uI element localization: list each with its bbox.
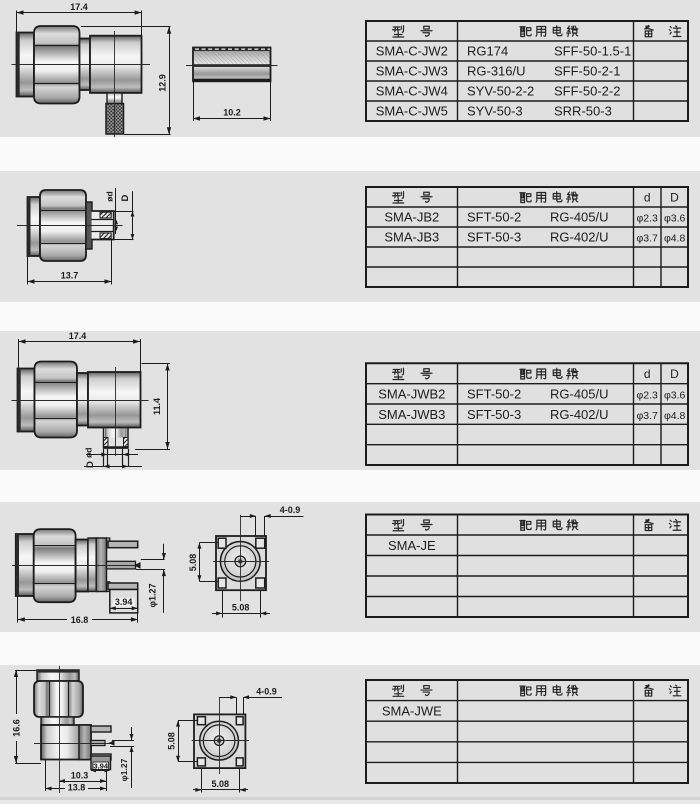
svg-text:φ4.8: φ4.8 — [664, 233, 686, 245]
svg-text:φ3.6: φ3.6 — [664, 390, 686, 402]
svg-text:10.2: 10.2 — [223, 108, 241, 118]
svg-text:D: D — [670, 367, 679, 381]
svg-text:D: D — [85, 461, 96, 468]
svg-text:4-0.9: 4-0.9 — [280, 505, 301, 515]
svg-text:φ3.7: φ3.7 — [636, 233, 658, 245]
svg-text:SFF-50-2-1: SFF-50-2-1 — [554, 64, 620, 79]
svg-text:17.4: 17.4 — [69, 331, 87, 341]
svg-text:SMA-JB3: SMA-JB3 — [384, 230, 439, 245]
svg-text:φ2.3: φ2.3 — [636, 390, 658, 402]
svg-text:RG-316/U: RG-316/U — [467, 64, 526, 79]
svg-text:SMA-JE: SMA-JE — [388, 538, 436, 553]
svg-text:ød: ød — [84, 448, 94, 458]
svg-text:φ3.6: φ3.6 — [664, 213, 686, 225]
svg-text:φ1.27: φ1.27 — [147, 584, 157, 608]
svg-text:SMA-JWB2: SMA-JWB2 — [378, 387, 445, 402]
svg-text:SFF-50-2-2: SFF-50-2-2 — [554, 84, 620, 99]
svg-text:SRR-50-3: SRR-50-3 — [554, 104, 612, 119]
svg-text:5.08: 5.08 — [167, 732, 177, 750]
svg-text:D: D — [120, 194, 131, 201]
svg-text:SMA-C-JW3: SMA-C-JW3 — [376, 64, 448, 79]
svg-text:17.4: 17.4 — [70, 2, 88, 12]
svg-text:5.08: 5.08 — [188, 554, 198, 572]
svg-text:RG-405/U: RG-405/U — [550, 387, 609, 402]
svg-text:SYV-50-3: SYV-50-3 — [467, 104, 523, 119]
svg-text:10.3: 10.3 — [71, 771, 89, 781]
svg-text:13.7: 13.7 — [61, 271, 79, 281]
svg-text:SMA-JWB3: SMA-JWB3 — [378, 407, 445, 422]
svg-text:SMA-C-JW4: SMA-C-JW4 — [376, 84, 448, 99]
svg-text:11.4: 11.4 — [152, 398, 162, 415]
svg-text:5.08: 5.08 — [232, 603, 250, 613]
svg-text:SMA-JWE: SMA-JWE — [382, 704, 442, 719]
svg-text:16.8: 16.8 — [71, 615, 89, 625]
svg-text:SMA-JB2: SMA-JB2 — [384, 210, 439, 225]
svg-text:RG174: RG174 — [467, 44, 508, 59]
svg-text:d: d — [644, 191, 651, 205]
svg-text:φ3.7: φ3.7 — [636, 410, 658, 422]
svg-text:4-0.9: 4-0.9 — [256, 687, 277, 697]
svg-text:SFT-50-2: SFT-50-2 — [467, 210, 521, 225]
svg-text:φ1.27: φ1.27 — [119, 758, 129, 781]
svg-text:SMA-C-JW2: SMA-C-JW2 — [376, 44, 448, 59]
svg-text:RG-402/U: RG-402/U — [550, 407, 609, 422]
svg-text:SFT-50-3: SFT-50-3 — [467, 407, 521, 422]
svg-text:5.08: 5.08 — [212, 779, 230, 789]
svg-text:d: d — [644, 367, 651, 381]
svg-text:3.94: 3.94 — [115, 597, 133, 607]
svg-text:12.9: 12.9 — [158, 74, 168, 92]
svg-text:φ2.3: φ2.3 — [636, 213, 658, 225]
svg-text:RG-402/U: RG-402/U — [550, 230, 609, 245]
svg-text:SYV-50-2-2: SYV-50-2-2 — [467, 84, 534, 99]
svg-text:16.6: 16.6 — [12, 719, 22, 737]
svg-text:SMA-C-JW5: SMA-C-JW5 — [376, 104, 448, 119]
svg-text:SFT-50-3: SFT-50-3 — [467, 230, 521, 245]
svg-text:ød: ød — [105, 191, 115, 201]
svg-text:RG-405/U: RG-405/U — [550, 210, 609, 225]
svg-text:SFT-50-2: SFT-50-2 — [467, 387, 521, 402]
svg-text:SFF-50-1.5-1: SFF-50-1.5-1 — [554, 44, 631, 59]
svg-text:φ4.8: φ4.8 — [664, 410, 686, 422]
svg-text:D: D — [670, 191, 679, 205]
svg-text:13.8: 13.8 — [68, 783, 86, 793]
